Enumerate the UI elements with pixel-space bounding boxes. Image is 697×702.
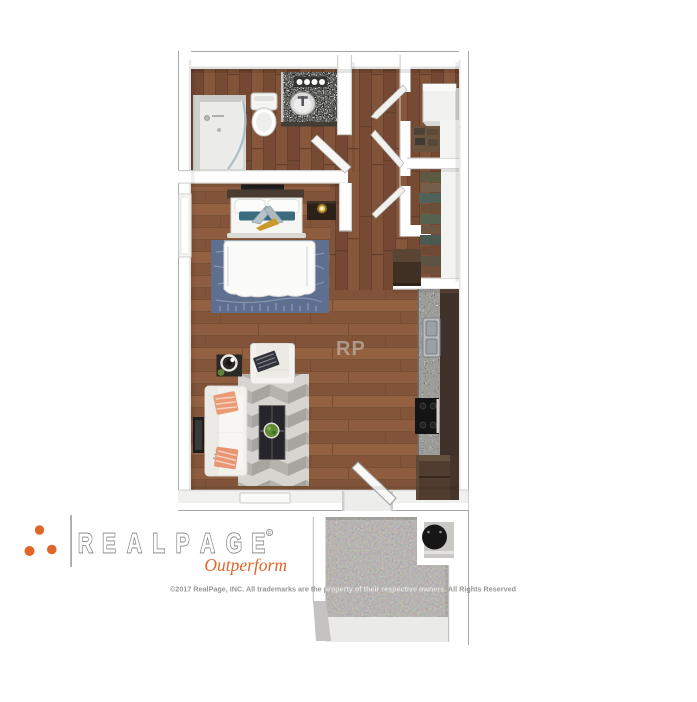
svg-text:P: P bbox=[176, 529, 190, 560]
svg-text:RP: RP bbox=[336, 338, 366, 360]
svg-text:A: A bbox=[127, 529, 142, 560]
svg-text:R: R bbox=[78, 529, 93, 560]
svg-text:R: R bbox=[268, 531, 272, 537]
svg-text:L: L bbox=[152, 529, 165, 560]
svg-text:E: E bbox=[102, 529, 116, 560]
svg-text:Outperform: Outperform bbox=[204, 555, 287, 575]
